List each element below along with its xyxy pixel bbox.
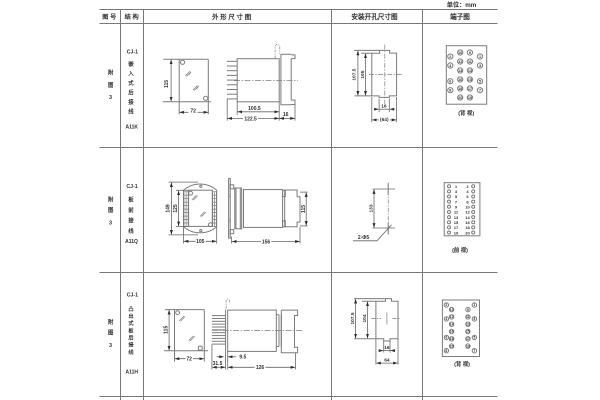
svg-text:线: 线 xyxy=(128,348,134,356)
svg-text:端子图: 端子图 xyxy=(450,12,470,21)
svg-text:安装开孔尺寸图: 安装开孔尺寸图 xyxy=(351,12,398,21)
svg-text:接: 接 xyxy=(128,217,134,225)
svg-text:20: 20 xyxy=(450,344,454,348)
svg-text:1: 1 xyxy=(473,303,475,307)
svg-text:16: 16 xyxy=(450,330,454,334)
svg-text:式: 式 xyxy=(128,319,134,327)
svg-text:附: 附 xyxy=(108,69,114,77)
svg-text:125: 125 xyxy=(173,204,179,213)
svg-text:CJ-1: CJ-1 xyxy=(127,292,138,298)
svg-text:A11H: A11H xyxy=(126,369,139,375)
svg-text:4: 4 xyxy=(445,317,447,321)
svg-text:(背 视): (背 视) xyxy=(458,109,474,117)
svg-text:单位：mm: 单位：mm xyxy=(447,1,477,9)
svg-text:2: 2 xyxy=(445,303,447,307)
svg-text:16: 16 xyxy=(458,78,462,82)
svg-text:107.5: 107.5 xyxy=(350,312,356,324)
svg-text:板: 板 xyxy=(128,326,134,334)
svg-text:前: 前 xyxy=(128,206,134,214)
svg-text:156: 156 xyxy=(262,239,271,245)
svg-text:15: 15 xyxy=(468,78,472,82)
svg-text:11: 11 xyxy=(468,60,472,64)
svg-text:10: 10 xyxy=(458,51,462,55)
svg-text:149: 149 xyxy=(166,204,172,213)
svg-text:3: 3 xyxy=(109,95,112,101)
svg-text:9: 9 xyxy=(467,308,469,312)
svg-text:115: 115 xyxy=(163,326,169,334)
svg-text:接: 接 xyxy=(128,98,134,106)
svg-text:115: 115 xyxy=(301,205,307,213)
svg-text:11: 11 xyxy=(466,315,470,319)
svg-text:7: 7 xyxy=(473,349,475,353)
svg-text:20: 20 xyxy=(458,96,462,100)
svg-text:12: 12 xyxy=(450,315,454,319)
svg-text:107.5: 107.5 xyxy=(351,68,357,80)
svg-text:图 号: 图 号 xyxy=(102,13,116,21)
svg-text:104: 104 xyxy=(362,314,368,322)
svg-text:嵌: 嵌 xyxy=(128,60,134,68)
svg-text:图: 图 xyxy=(108,206,114,214)
svg-text:(前 视): (前 视) xyxy=(452,246,468,254)
svg-text:(64): (64) xyxy=(380,117,389,123)
svg-text:19: 19 xyxy=(454,230,459,235)
svg-text:式: 式 xyxy=(128,79,134,87)
svg-text:入: 入 xyxy=(128,71,134,78)
svg-text:外 形 尺 寸 图: 外 形 尺 寸 图 xyxy=(212,12,251,21)
svg-text:16: 16 xyxy=(381,103,387,109)
svg-text:16: 16 xyxy=(384,345,390,351)
svg-text:5: 5 xyxy=(473,336,475,340)
svg-text:接: 接 xyxy=(128,341,134,349)
svg-text:133: 133 xyxy=(368,204,374,212)
svg-text:CJ-1: CJ-1 xyxy=(126,184,137,190)
svg-text:8: 8 xyxy=(445,349,447,353)
svg-text:10: 10 xyxy=(450,308,454,312)
svg-text:13: 13 xyxy=(468,69,472,73)
svg-text:后: 后 xyxy=(128,89,134,97)
svg-text:72: 72 xyxy=(186,357,192,363)
svg-text:126: 126 xyxy=(256,365,265,371)
svg-text:2: 2 xyxy=(449,55,451,59)
svg-text:3: 3 xyxy=(109,343,112,349)
svg-text:18: 18 xyxy=(458,87,462,91)
svg-text:A11K: A11K xyxy=(126,124,139,130)
svg-text:16: 16 xyxy=(283,112,289,118)
svg-text:17: 17 xyxy=(468,87,472,91)
svg-text:1: 1 xyxy=(479,55,481,59)
svg-text:后: 后 xyxy=(128,334,134,342)
svg-text:结 构: 结 构 xyxy=(125,13,139,21)
svg-text:31.5: 31.5 xyxy=(213,361,223,367)
svg-text:图: 图 xyxy=(108,329,114,337)
svg-text:3: 3 xyxy=(473,317,475,321)
svg-text:64: 64 xyxy=(384,358,390,364)
svg-text:出: 出 xyxy=(128,312,133,320)
svg-text:19: 19 xyxy=(466,344,470,348)
svg-text:附: 附 xyxy=(108,196,114,204)
svg-text:3: 3 xyxy=(479,64,481,68)
svg-text:8: 8 xyxy=(449,89,451,93)
svg-text:13: 13 xyxy=(466,322,470,326)
svg-text:15: 15 xyxy=(466,330,470,334)
svg-text:6: 6 xyxy=(449,80,451,84)
svg-text:14: 14 xyxy=(450,322,454,326)
svg-text:19: 19 xyxy=(468,96,472,100)
svg-text:115: 115 xyxy=(164,80,170,88)
svg-text:凸: 凸 xyxy=(128,305,133,313)
svg-text:9: 9 xyxy=(469,51,471,55)
svg-text:7: 7 xyxy=(479,89,481,93)
svg-text:105: 105 xyxy=(196,239,205,245)
svg-text:(背 视): (背 视) xyxy=(454,360,470,368)
svg-text:20: 20 xyxy=(465,230,470,235)
svg-text:17: 17 xyxy=(466,337,470,341)
svg-text:板: 板 xyxy=(128,196,134,204)
svg-text:6: 6 xyxy=(445,336,447,340)
svg-text:18: 18 xyxy=(450,337,454,341)
svg-text:9.5: 9.5 xyxy=(239,355,246,361)
svg-text:CJ-1: CJ-1 xyxy=(127,50,138,56)
svg-text:3: 3 xyxy=(109,220,112,226)
svg-text:图: 图 xyxy=(108,81,114,89)
svg-text:12: 12 xyxy=(458,60,462,64)
svg-text:线: 线 xyxy=(128,227,134,235)
svg-text:线: 线 xyxy=(128,108,134,116)
svg-text:122.5: 122.5 xyxy=(244,117,257,123)
svg-text:A11Q: A11Q xyxy=(125,239,138,245)
svg-text:附: 附 xyxy=(108,318,114,326)
svg-text:5: 5 xyxy=(479,80,481,84)
svg-text:105: 105 xyxy=(360,70,366,78)
svg-text:100.5: 100.5 xyxy=(248,106,261,112)
svg-text:2-Φ5: 2-Φ5 xyxy=(358,235,370,241)
svg-text:72: 72 xyxy=(190,109,196,115)
